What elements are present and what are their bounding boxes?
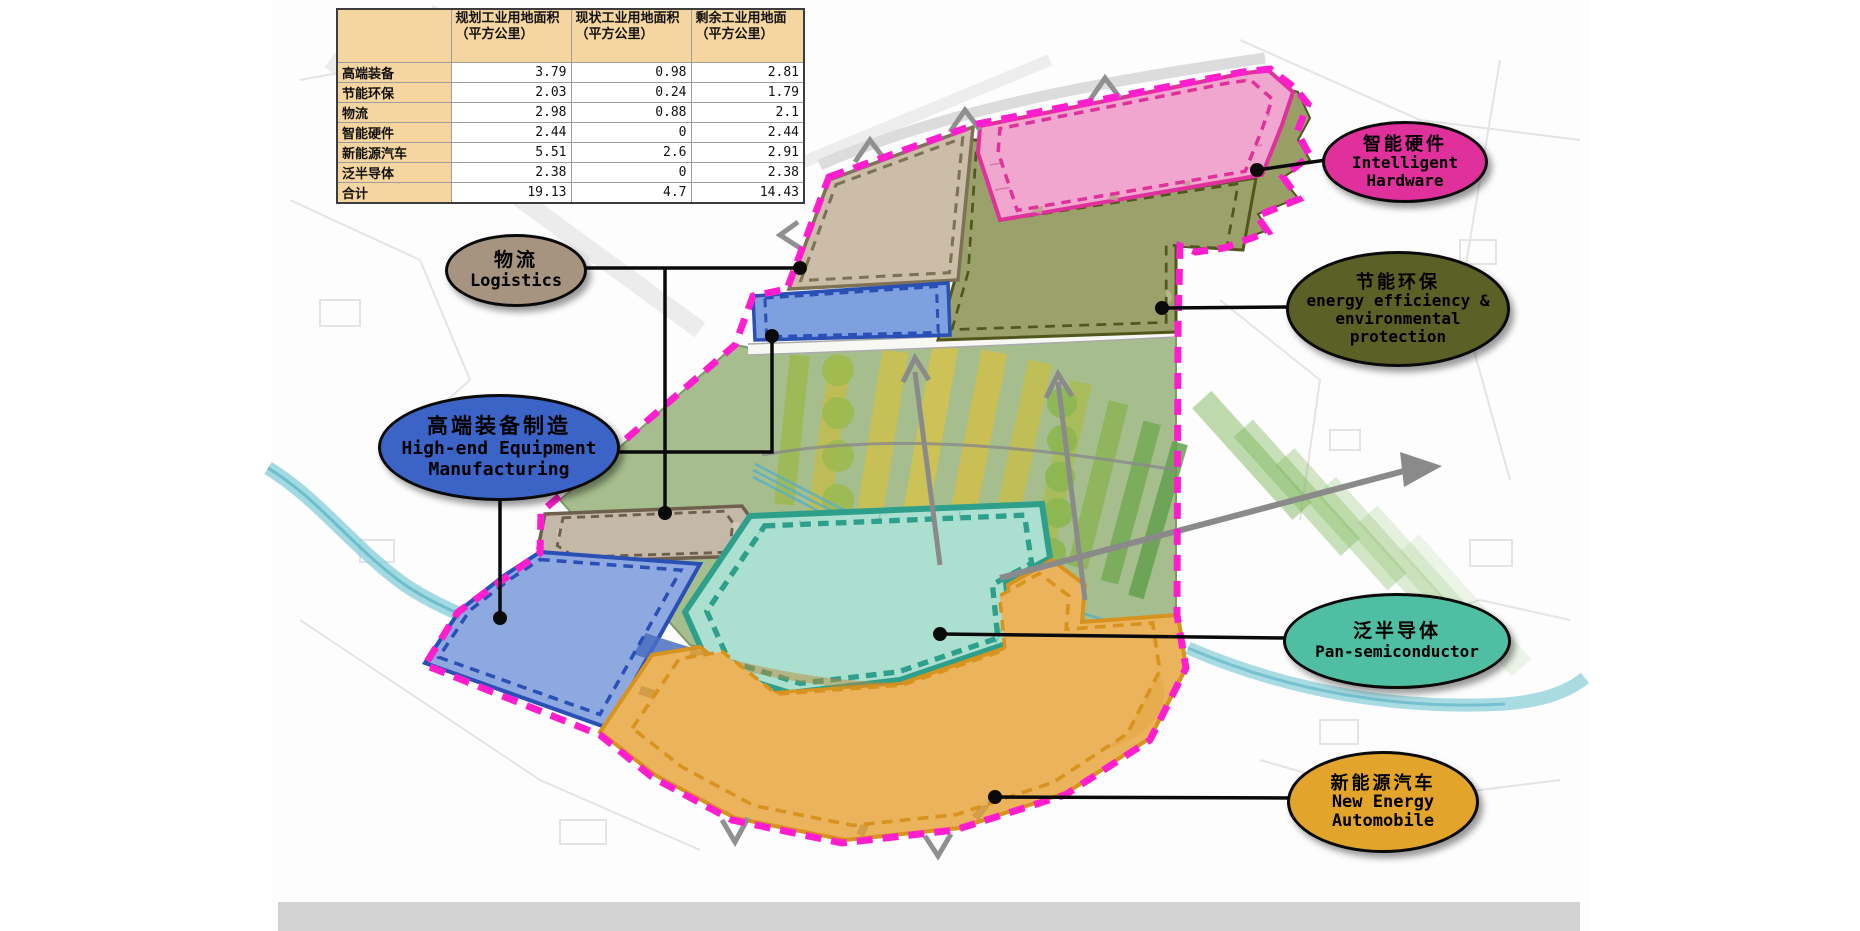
cell-value: 2.81: [691, 63, 804, 83]
row-label-total: 合计: [337, 183, 451, 204]
row-label: 高端装备: [337, 63, 451, 83]
cell-value: 2.03: [451, 83, 571, 103]
cell-value: 5.51: [451, 143, 571, 163]
cell-value: 2.98: [451, 103, 571, 123]
row-label: 智能硬件: [337, 123, 451, 143]
cell-value: 0.88: [571, 103, 691, 123]
label-highend-equipment-en: High-end Equipment Manufacturing: [381, 439, 617, 479]
cell-value: 1.79: [691, 83, 804, 103]
cell-value: 0.24: [571, 83, 691, 103]
col-header-remaining: 剩余工业用地面（平方公里）: [691, 9, 804, 63]
table-row: 节能环保 2.03 0.24 1.79: [337, 83, 804, 103]
cell-value: 3.79: [451, 63, 571, 83]
label-pan-semiconductor-en: Pan-semiconductor: [1315, 643, 1479, 661]
label-logistics-en: Logistics: [470, 272, 562, 291]
table-row: 高端装备 3.79 0.98 2.81: [337, 63, 804, 83]
label-energy-environment-en: energy efficiency & environmental protec…: [1289, 292, 1507, 346]
cell-value: 2.91: [691, 143, 804, 163]
table-header-row: 规划工业用地面积（平方公里） 现状工业用地面积（平方公里） 剩余工业用地面（平方…: [337, 9, 804, 63]
table-corner-cell: [337, 9, 451, 63]
label-intelligent-hardware-zh: 智能硬件: [1363, 134, 1447, 155]
table-row: 新能源汽车 5.51 2.6 2.91: [337, 143, 804, 163]
table-row-total: 合计 19.13 4.7 14.43: [337, 183, 804, 204]
label-energy-environment: 节能环保 energy efficiency & environmental p…: [1286, 251, 1510, 367]
cell-value: 0: [571, 123, 691, 143]
row-label: 泛半导体: [337, 163, 451, 183]
label-intelligent-hardware-en: Intelligent Hardware: [1325, 154, 1485, 190]
label-new-energy-automobile-en: New Energy Automobile: [1290, 793, 1476, 831]
table-row: 物流 2.98 0.88 2.1: [337, 103, 804, 123]
table-row: 智能硬件 2.44 0 2.44: [337, 123, 804, 143]
row-label: 节能环保: [337, 83, 451, 103]
cell-value: 2.6: [571, 143, 691, 163]
cell-value: 2.1: [691, 103, 804, 123]
label-highend-equipment-zh: 高端装备制造: [427, 415, 571, 439]
label-intelligent-hardware: 智能硬件 Intelligent Hardware: [1322, 121, 1488, 203]
bottom-gray-band: [278, 902, 1580, 931]
cell-value: 4.7: [571, 183, 691, 204]
table-row: 泛半导体 2.38 0 2.38: [337, 163, 804, 183]
label-logistics: 物流 Logistics: [445, 234, 587, 307]
zone-logistics-south-setback: [557, 511, 732, 557]
label-pan-semiconductor-zh: 泛半导体: [1353, 621, 1441, 643]
label-highend-equipment: 高端装备制造 High-end Equipment Manufacturing: [378, 394, 620, 501]
cell-value: 14.43: [691, 183, 804, 204]
cell-value: 2.44: [691, 123, 804, 143]
label-pan-semiconductor: 泛半导体 Pan-semiconductor: [1283, 593, 1511, 689]
col-header-planned: 规划工业用地面积（平方公里）: [451, 9, 571, 63]
row-label: 新能源汽车: [337, 143, 451, 163]
planning-map: [0, 0, 1860, 931]
col-header-current: 现状工业用地面积（平方公里）: [571, 9, 691, 63]
land-area-table: 规划工业用地面积（平方公里） 现状工业用地面积（平方公里） 剩余工业用地面（平方…: [336, 8, 805, 204]
label-logistics-zh: 物流: [494, 250, 538, 272]
row-label: 物流: [337, 103, 451, 123]
label-new-energy-automobile-zh: 新能源汽车: [1331, 773, 1436, 794]
cell-value: 0: [571, 163, 691, 183]
cell-value: 2.38: [691, 163, 804, 183]
label-energy-environment-zh: 节能环保: [1356, 272, 1440, 293]
cell-value: 0.98: [571, 63, 691, 83]
label-new-energy-automobile: 新能源汽车 New Energy Automobile: [1287, 751, 1479, 853]
cell-value: 19.13: [451, 183, 571, 204]
cell-value: 2.44: [451, 123, 571, 143]
cell-value: 2.38: [451, 163, 571, 183]
